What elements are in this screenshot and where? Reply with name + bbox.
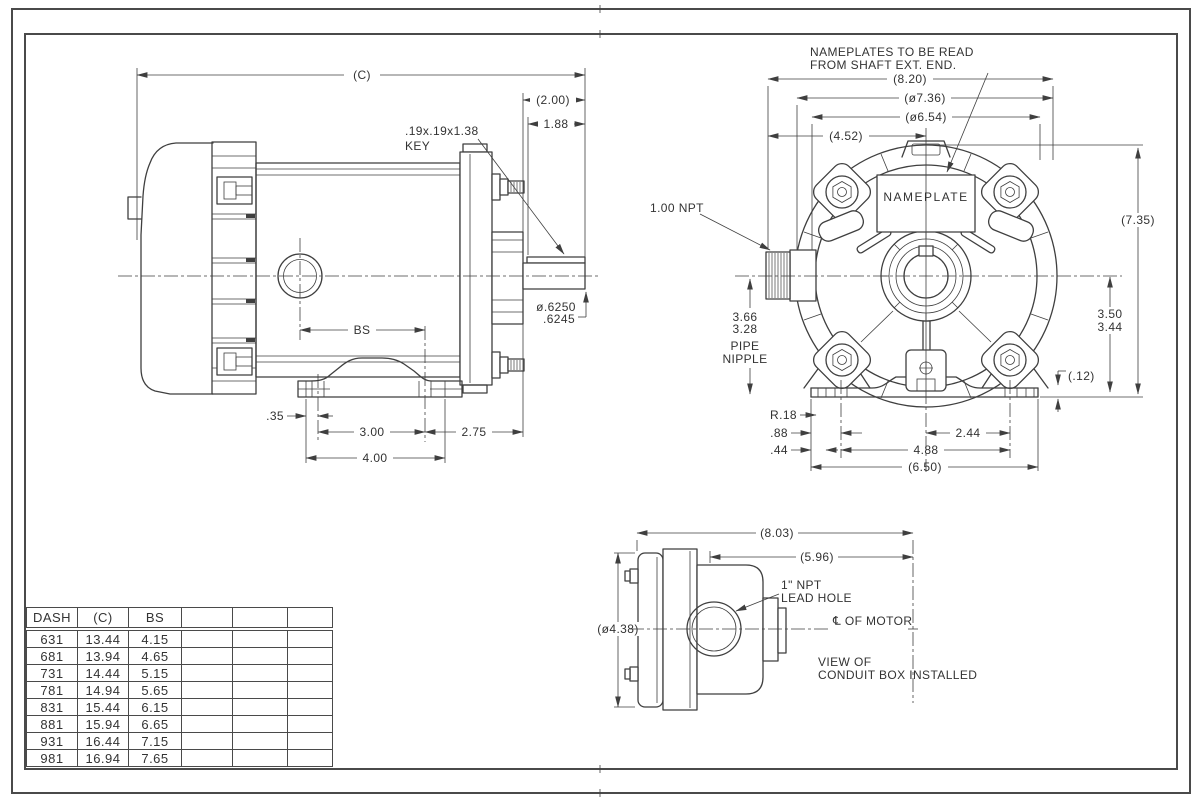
key-note: KEY — [405, 139, 430, 153]
side-view: (C) (2.00) 1.88 .19x.19x1.38 KEY BS ø.62… — [118, 68, 598, 465]
mounting-ear — [809, 327, 874, 392]
cell-c: 14.94 — [78, 682, 129, 699]
cell-c: 15.94 — [78, 716, 129, 733]
shaft-key — [527, 257, 585, 263]
cell-bs: 7.65 — [129, 750, 182, 767]
dim-label: 3.50 — [1098, 307, 1123, 321]
dim-label: 4.00 — [363, 451, 388, 465]
cell-c: 16.44 — [78, 733, 129, 750]
nameplate-note: FROM SHAFT EXT. END. — [810, 58, 956, 72]
dim-label: 3.00 — [360, 425, 385, 439]
lead-hole-label: 1" NPT — [781, 578, 822, 592]
table-header-row: DASH (C) BS — [27, 608, 333, 630]
dim-label: (8.03) — [760, 526, 794, 540]
cell-dash: 981 — [27, 750, 78, 767]
dim-label: (5.96) — [800, 550, 834, 564]
dim-label: (2.00) — [536, 93, 570, 107]
conduit-box-view: (8.03) (5.96) (ø4.38) 1" NPT LEAD HOLE ℄… — [591, 526, 977, 710]
dim-label: R.18 — [770, 408, 797, 422]
col-header-empty — [182, 608, 233, 630]
pipe-nipple-label: PIPE — [731, 339, 760, 353]
view-caption: VIEW OF — [818, 655, 871, 669]
cell-bs: 4.65 — [129, 648, 182, 665]
cell-dash: 831 — [27, 699, 78, 716]
col-header-empty — [233, 608, 288, 630]
cell-dash: 681 — [27, 648, 78, 665]
col-header-empty — [288, 608, 333, 630]
pipe-nipple-label: NIPPLE — [722, 352, 767, 366]
dim-label: .35 — [266, 409, 284, 423]
key-note: .19x.19x1.38 — [405, 124, 479, 138]
shaft-dia-label: .6245 — [543, 312, 575, 326]
cell-dash: 781 — [27, 682, 78, 699]
cell-dash: 631 — [27, 629, 78, 648]
npt-label: 1.00 NPT — [650, 201, 704, 215]
dim-label: (ø6.54) — [905, 110, 946, 124]
dim-label: 2.44 — [956, 426, 981, 440]
dim-label: 2.75 — [462, 425, 487, 439]
front-view: NAMEPLATES TO BE READ FROM SHAFT EXT. EN… — [650, 45, 1161, 474]
table-row: 93116.447.15 — [27, 733, 333, 750]
table-row: 88115.946.65 — [27, 716, 333, 733]
nameplate-note: NAMEPLATES TO BE READ — [810, 45, 974, 59]
dim-label: (6.50) — [908, 460, 942, 474]
cell-bs: 5.65 — [129, 682, 182, 699]
table-row: 73114.445.15 — [27, 665, 333, 682]
dimension-table: DASH (C) BS 63113.444.15 68113.944.65 73… — [26, 607, 333, 767]
engineering-drawing-sheet: (C) (2.00) 1.88 .19x.19x1.38 KEY BS ø.62… — [0, 0, 1203, 809]
nameplate-text: NAMEPLATE — [883, 190, 968, 204]
table-row: 78114.945.65 — [27, 682, 333, 699]
cell-bs: 6.15 — [129, 699, 182, 716]
pipe-nipple-collar — [790, 250, 816, 301]
col-header-bs: BS — [129, 608, 182, 630]
cell-c: 15.44 — [78, 699, 129, 716]
dim-label: (C) — [353, 68, 371, 82]
dim-label: 3.44 — [1098, 320, 1123, 334]
cell-dash: 931 — [27, 733, 78, 750]
view-caption: CONDUIT BOX INSTALLED — [818, 668, 977, 682]
dim-label: (8.20) — [893, 72, 927, 86]
lead-hole-label: LEAD HOLE — [781, 591, 852, 605]
col-header-c: (C) — [78, 608, 129, 630]
dim-label: .44 — [770, 443, 788, 457]
conduit-body — [697, 565, 763, 694]
cell-bs: 6.65 — [129, 716, 182, 733]
cell-c: 13.94 — [78, 648, 129, 665]
dim-label: 1.88 — [544, 117, 569, 131]
dim-label: .88 — [770, 426, 788, 440]
cell-bs: 7.15 — [129, 733, 182, 750]
cell-c: 13.44 — [78, 629, 129, 648]
cell-dash: 881 — [27, 716, 78, 733]
table-row: 63113.444.15 — [27, 629, 333, 648]
centerline-label: ℄ OF MOTOR — [832, 614, 912, 628]
cell-dash: 731 — [27, 665, 78, 682]
cell-bs: 5.15 — [129, 665, 182, 682]
cell-bs: 4.15 — [129, 629, 182, 648]
cell-c: 16.94 — [78, 750, 129, 767]
dim-label: (7.35) — [1121, 213, 1155, 227]
table-row: 98116.947.65 — [27, 750, 333, 767]
table-row: 83115.446.15 — [27, 699, 333, 716]
col-header-dash: DASH — [27, 608, 78, 630]
table-row: 68113.944.65 — [27, 648, 333, 665]
dim-label: (.12) — [1068, 369, 1095, 383]
dim-label: BS — [354, 323, 371, 337]
cell-c: 14.44 — [78, 665, 129, 682]
dim-label: (ø7.36) — [904, 91, 945, 105]
pipe-nipple-label: 3.28 — [733, 322, 758, 336]
dim-label: (4.52) — [829, 129, 863, 143]
